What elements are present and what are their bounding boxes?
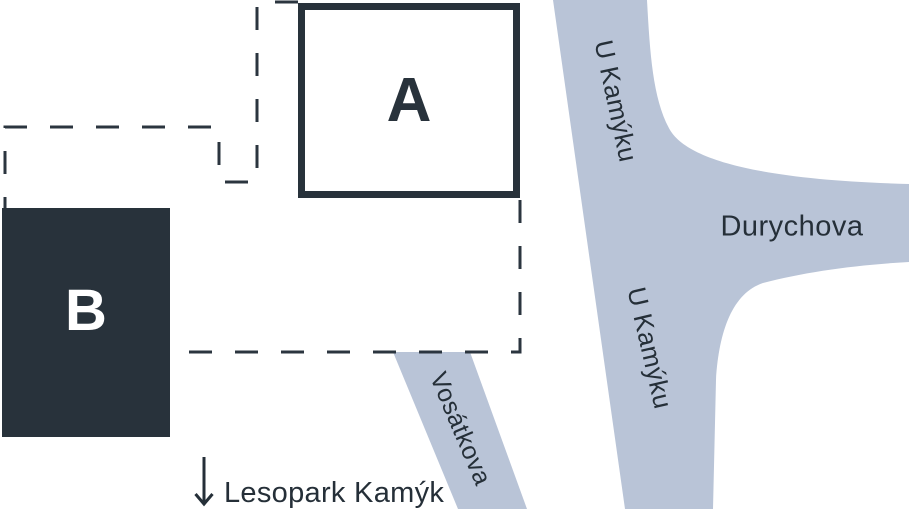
lesopark-kamyk-label: Lesopark Kamýk [224,479,444,508]
building-b-label: B [65,282,107,340]
site-plan-map: A B U Kamýku U Kamýku Durychova Vosátkov… [0,0,909,509]
building-a: A [298,3,520,198]
street-label-durychova: Durychova [720,213,863,242]
building-b: B [2,208,170,437]
down-arrow-icon [190,452,218,509]
building-a-label: A [387,70,432,132]
